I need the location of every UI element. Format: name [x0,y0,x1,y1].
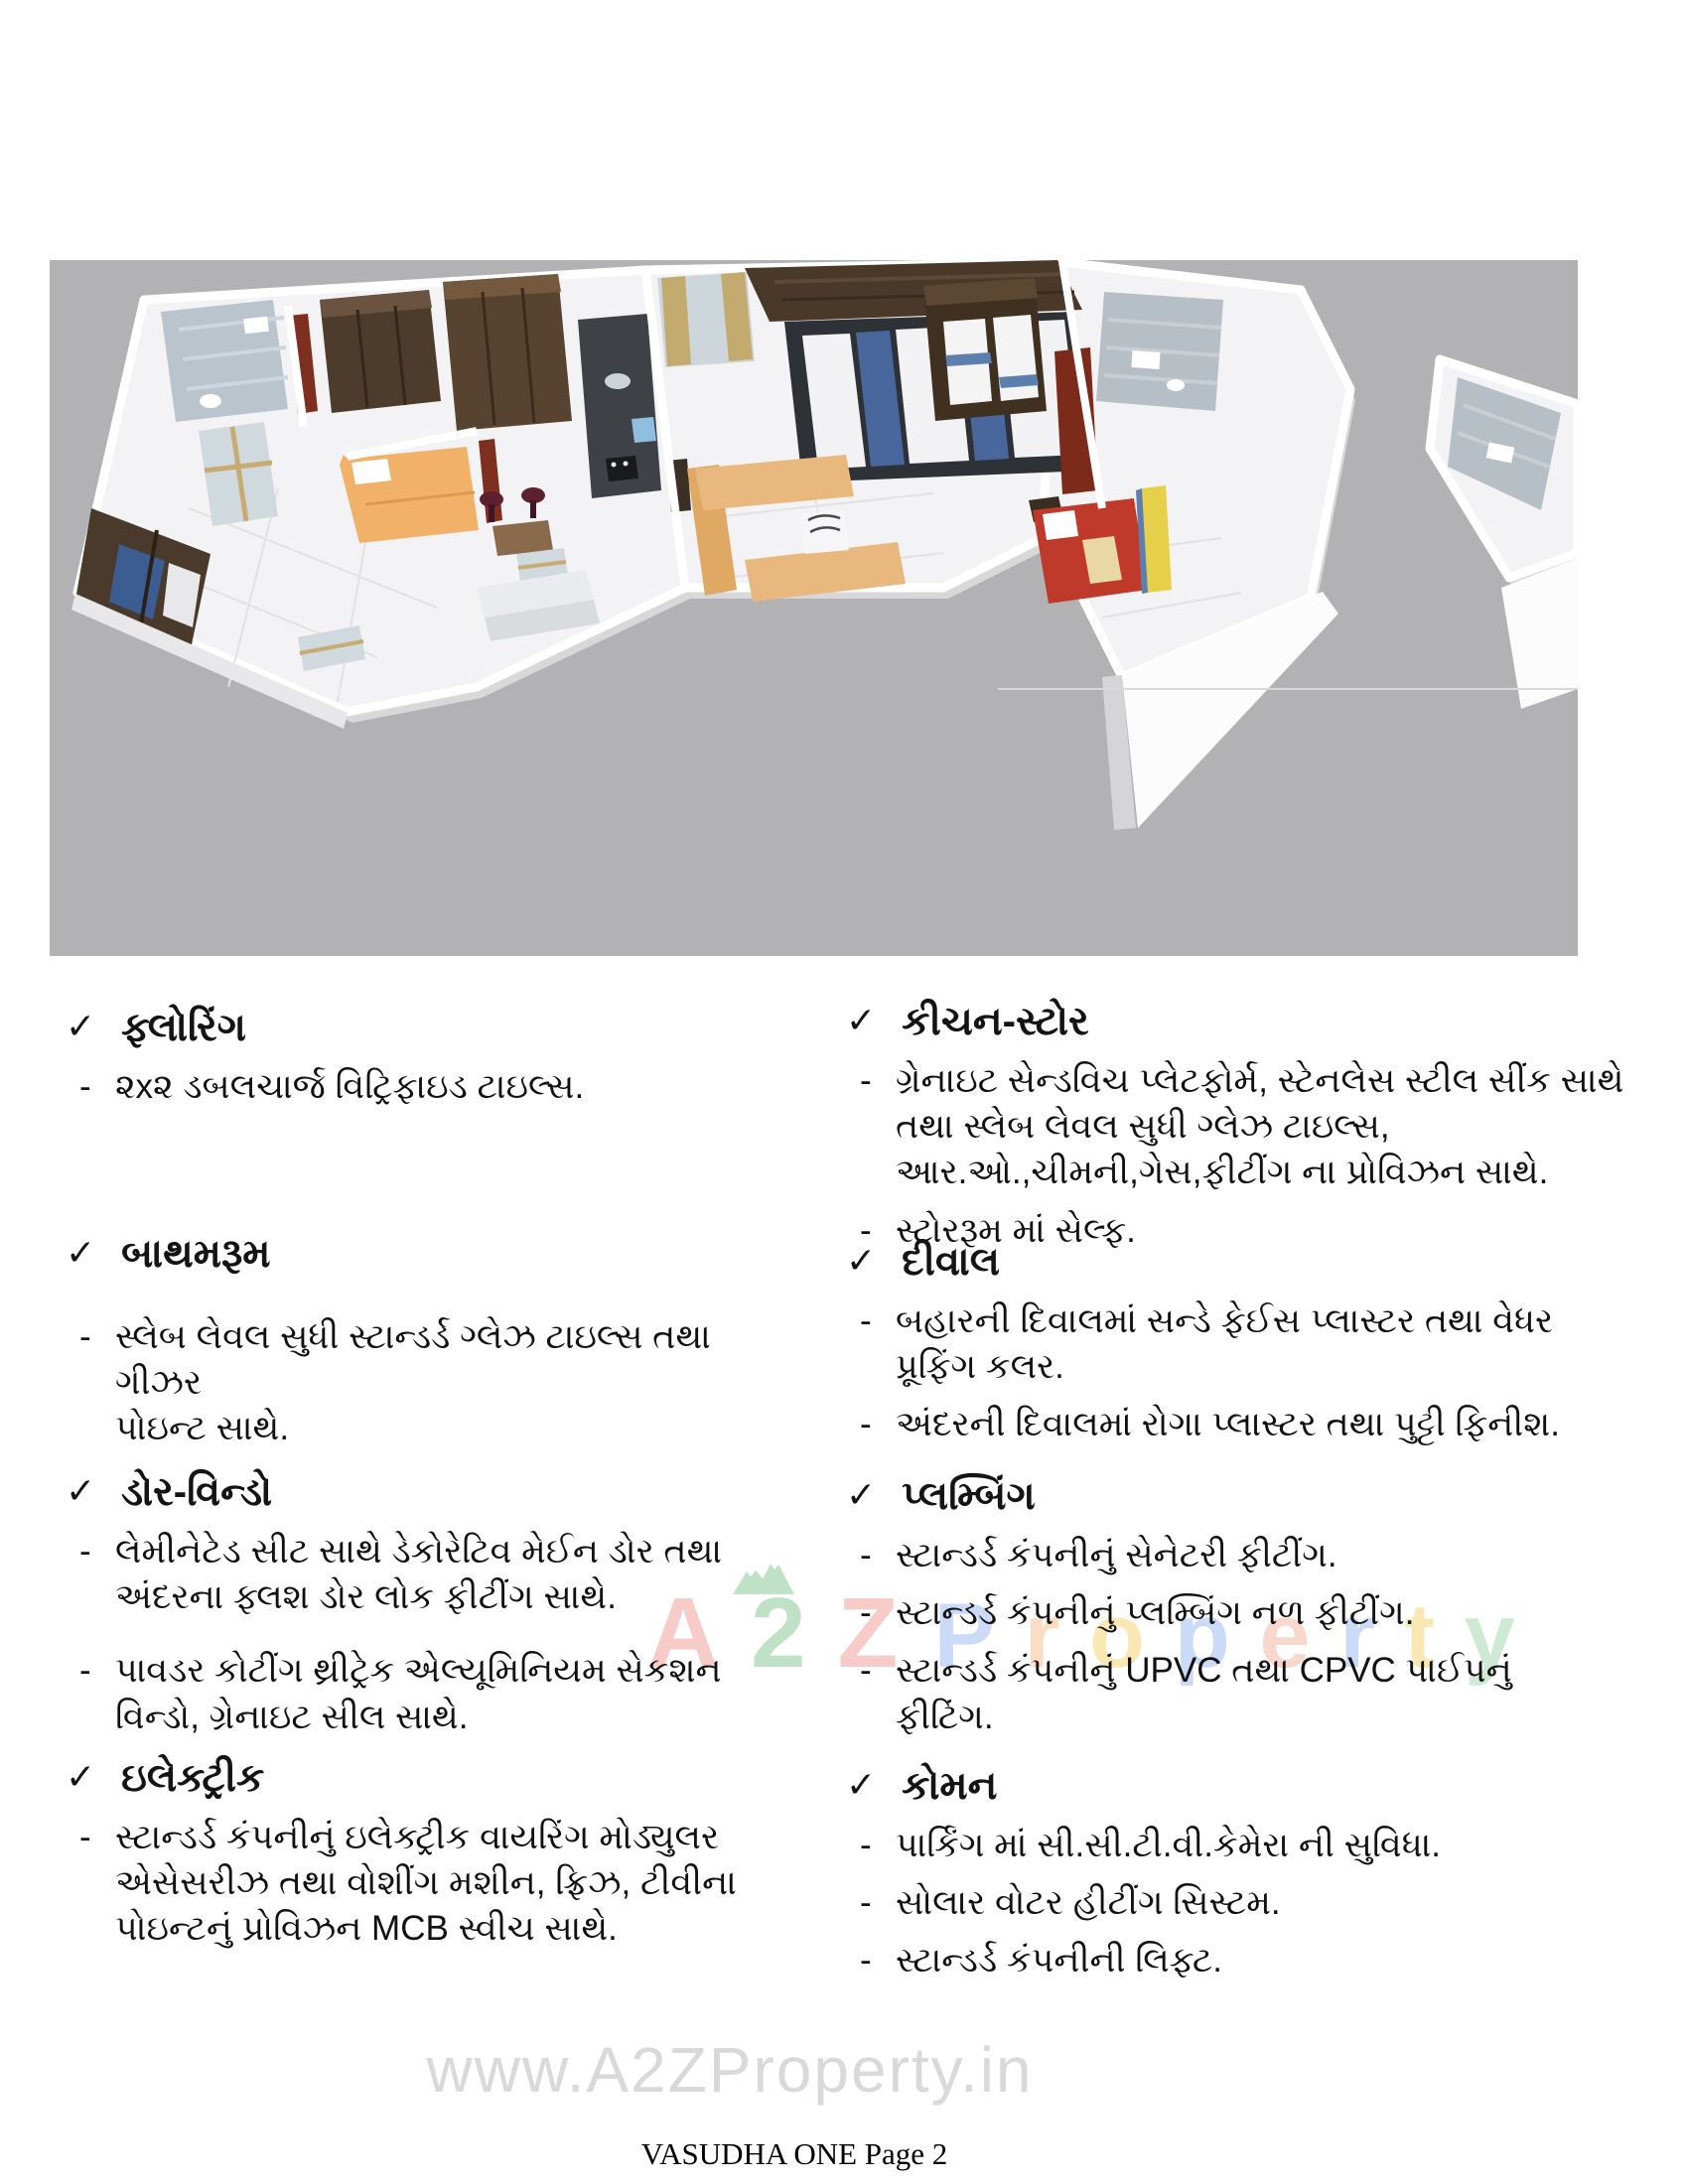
bed-red [1029,496,1148,604]
check-icon: ✓ [66,1470,95,1511]
spec-item: - સ્ટાન્ડર્ડ કંપનીની લિફ્ટ. [846,1938,1630,1983]
floorplan-render [50,260,1578,956]
bullet-dash: - [846,1533,896,1578]
wardrobe-center [443,274,572,431]
spec-item-text: બહારની દિવાલમાં સન્ડે ફેઈસ પ્લાસ્ટર તથા … [896,1298,1553,1390]
window-curtains [657,272,755,367]
spec-item-text: સ્ટાન્ડર્ડ કંપનીનું ઇલેક્ટ્રીક વાયરિંગ મ… [115,1815,737,1953]
spec-section-plumbing: ✓ પ્લમ્બિંગ - સ્ટાન્ડર્ડ કંપનીનું સેનેટર… [846,1473,1630,1752]
bullet-dash: - [846,1823,896,1868]
floorplan-svg [50,260,1578,956]
bullet-dash: - [66,1815,115,1860]
spec-section-common: ✓ કોમન - પાર્કિંગ માં સી.સી.ટી.વી.કેમેરા… [846,1763,1630,1996]
spec-item: - લેમીનેટેડ સીટ સાથે ડેકોરેટિવ મેઈન ડોર … [66,1529,780,1620]
spec-item-text: અંદરની દિવાલમાં રોગા પ્લાસ્ટર તથા પુટ્ટી… [896,1402,1560,1447]
spec-item-text: સ્લેબ લેવલ સુધી સ્ટાન્ડર્ડ ગ્લેઝ ટાઇલ્સ … [115,1314,780,1452]
spec-item: - ૨x૨ ડબલચાર્જ વિટ્રિફાઇડ ટાઇલ્સ. [66,1064,780,1110]
bed-orange [340,447,479,543]
spec-item-text: સ્ટાન્ડર્ડ કંપનીનું સેનેટરી ફીટીંગ. [896,1533,1337,1578]
spec-section-title: ડોર-વિન્ડો [121,1469,272,1515]
spec-section-title: દીવાલ [902,1239,1000,1285]
bullet-dash: - [846,1298,896,1344]
spec-section-title: કોમન [902,1763,997,1809]
spec-section-electric: ✓ ઇલેક્ટ્રીક - સ્ટાન્ડર્ડ કંપનીનું ઇલેક્… [66,1755,780,1965]
spec-section-wall: ✓ દીવાલ - બહારની દિવાલમાં સન્ડે ફેઈસ પ્લ… [846,1239,1630,1460]
bullet-dash: - [66,1314,115,1360]
spec-item: - સોલાર વોટર હીટીંગ સિસ્ટમ. [846,1880,1630,1926]
bathroom-right [1096,292,1223,411]
kitchen-counter [578,314,661,498]
spec-item: - ગ્રેનાઇટ સેન્ડવિચ પ્લેટફોર્મ, સ્ટેનલેસ… [846,1058,1630,1196]
spec-item-text: પાવડર કોટીંગ થ્રીટ્રેક એલ્યૂમિનિયમ સેકશન… [115,1648,722,1739]
spec-item-text: સોલાર વોટર હીટીંગ સિસ્ટમ. [896,1880,1281,1926]
spec-item: - સ્ટાન્ડર્ડ કંપનીનું ઇલેક્ટ્રીક વાયરિંગ… [66,1815,780,1953]
bullet-dash: - [66,1648,115,1694]
bullet-dash: - [846,1590,896,1636]
spec-item-text: સ્ટાન્ડર્ડ કંપનીનું UPVC તથા CPVC પાઈપનુ… [896,1648,1512,1739]
spec-item: - અંદરની દિવાલમાં રોગા પ્લાસ્ટર તથા પુટ્… [846,1402,1630,1447]
check-icon: ✓ [846,1240,876,1281]
bathroom-left [161,300,288,422]
check-icon: ✓ [66,1232,95,1273]
spec-section-title: ફ્લોરિંગ [121,1005,246,1050]
spec-item-text: ગ્રેનાઇટ સેન્ડવિચ પ્લેટફોર્મ, સ્ટેનલેસ સ… [896,1058,1623,1196]
spec-item: - સ્ટાન્ડર્ડ કંપનીનું UPVC તથા CPVC પાઈપ… [846,1648,1630,1739]
spec-section-title: બાથમરૂમ [121,1231,270,1277]
bullet-dash: - [66,1064,115,1110]
bullet-dash: - [846,1938,896,1983]
wardrobe-left [320,290,441,413]
spec-item: - પાવડર કોટીંગ થ્રીટ્રેક એલ્યૂમિનિયમ સેક… [66,1648,780,1739]
spec-item-text: સ્ટાન્ડર્ડ કંપનીની લિફ્ટ. [896,1938,1222,1983]
spec-section-bathroom: ✓ બાથમરૂમ - સ્લેબ લેવલ સુધી સ્ટાન્ડર્ડ ગ… [66,1231,780,1464]
spec-item: - સ્ટાન્ડર્ડ કંપનીનું પ્લમ્બિંગ નળ ફીટીં… [846,1590,1630,1636]
bullet-dash: - [846,1058,896,1104]
brochure-page: A 2 Z P r o p e r t y ✓ ફ્લોરિંગ - ૨x૨ ડ… [0,0,1687,2184]
spec-item-text: લેમીનેટેડ સીટ સાથે ડેકોરેટિવ મેઈન ડોર તથ… [115,1529,722,1620]
check-icon: ✓ [846,1474,876,1515]
spec-item: - સ્લેબ લેવલ સુધી સ્ટાન્ડર્ડ ગ્લેઝ ટાઇલ્… [66,1314,780,1452]
check-icon: ✓ [846,1000,876,1040]
window-left [199,422,278,526]
spec-item: - બહારની દિવાલમાં સન્ડે ફેઈસ પ્લાસ્ટર તથ… [846,1298,1630,1390]
spec-section-door-window: ✓ ડોર-વિન્ડો - લેમીનેટેડ સીટ સાથે ડેકોરે… [66,1469,780,1768]
page-footer: VASUDHA ONE Page 2 [641,2136,948,2172]
spec-item: - પાર્કિંગ માં સી.સી.ટી.વી.કેમેરા ની સુવ… [846,1823,1630,1868]
bullet-dash: - [846,1648,896,1694]
spec-item: - સ્ટાન્ડર્ડ કંપનીનું સેનેટરી ફીટીંગ. [846,1533,1630,1578]
spec-item-text: પાર્કિંગ માં સી.સી.ટી.વી.કેમેરા ની સુવિધ… [896,1823,1441,1868]
wardrobe-right [923,278,1047,421]
spec-section-kitchen-store: ✓ કીચન-સ્ટોર - ગ્રેનાઇટ સેન્ડવિચ પ્લેટફો… [846,999,1630,1266]
bullet-dash: - [846,1880,896,1926]
site-url-watermark: www.A2ZProperty.in [427,2033,1034,2107]
check-icon: ✓ [846,1764,876,1805]
spec-item-text: ૨x૨ ડબલચાર્જ વિટ્રિફાઇડ ટાઇલ્સ. [115,1064,584,1110]
spec-section-title: કીચન-સ્ટોર [902,999,1089,1044]
spec-section-title: ઇલેક્ટ્રીક [121,1755,264,1801]
accent-wall-yellow [1136,485,1172,594]
check-icon: ✓ [66,1756,95,1797]
spec-section-flooring: ✓ ફ્લોરિંગ - ૨x૨ ડબલચાર્જ વિટ્રિફાઇડ ટાઇ… [66,1005,780,1122]
bullet-dash: - [846,1402,896,1447]
bullet-dash: - [66,1529,115,1574]
spec-item-text: સ્ટાન્ડર્ડ કંપનીનું પ્લમ્બિંગ નળ ફીટીંગ. [896,1590,1414,1636]
check-icon: ✓ [66,1006,95,1046]
spec-section-title: પ્લમ્બિંગ [902,1473,1035,1519]
